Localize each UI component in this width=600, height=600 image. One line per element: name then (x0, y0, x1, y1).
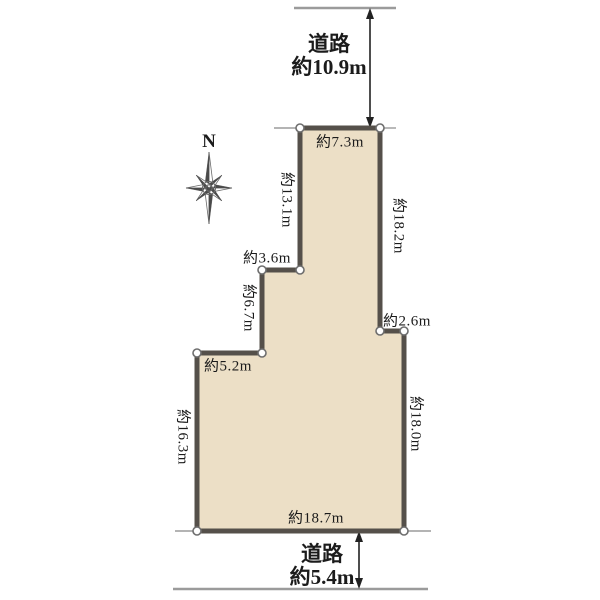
vertex-dot (193, 527, 201, 535)
vertex-dot (296, 266, 304, 274)
road-name-top: 道路 (291, 33, 366, 56)
vertex-dot (400, 527, 408, 535)
dim-label-upper-right-edge: 約18.2m (390, 198, 411, 254)
road-width-arrow-bottom (355, 531, 363, 589)
compass-north-label: N (202, 131, 216, 153)
dim-label-step-right-horiz: 約2.6m (383, 310, 431, 331)
dim-label-lower-left-edge: 約16.3m (174, 409, 195, 465)
road-width-bottom: 約5.4m (290, 566, 355, 589)
road-label-bottom: 道路 約5.4m (290, 543, 355, 589)
road-label-top: 道路 約10.9m (291, 33, 366, 79)
vertex-dot (296, 124, 304, 132)
dim-label-lower-right-edge: 約18.0m (407, 396, 428, 452)
dim-label-mid-left-horiz: 約5.2m (204, 355, 252, 376)
dim-label-step-left-vert: 約6.7m (240, 284, 261, 332)
dim-label-top-edge: 約7.3m (316, 131, 364, 152)
site-plan-diagram: N 道路 約10.9m 道路 約5.4m 約7.3m 約13.1m 約3.6m … (0, 0, 600, 600)
dim-label-bottom-edge: 約18.7m (288, 507, 344, 528)
vertex-dot (193, 349, 201, 357)
road-name-bottom: 道路 (290, 543, 355, 566)
vertex-dot (376, 124, 384, 132)
vertex-dot (258, 349, 266, 357)
road-width-top: 約10.9m (291, 56, 366, 79)
dim-label-step-left-horiz: 約3.6m (243, 247, 291, 268)
dim-label-upper-left-edge: 約13.1m (278, 172, 299, 228)
road-width-arrow-top (366, 8, 374, 128)
compass-rose-icon (186, 152, 232, 224)
